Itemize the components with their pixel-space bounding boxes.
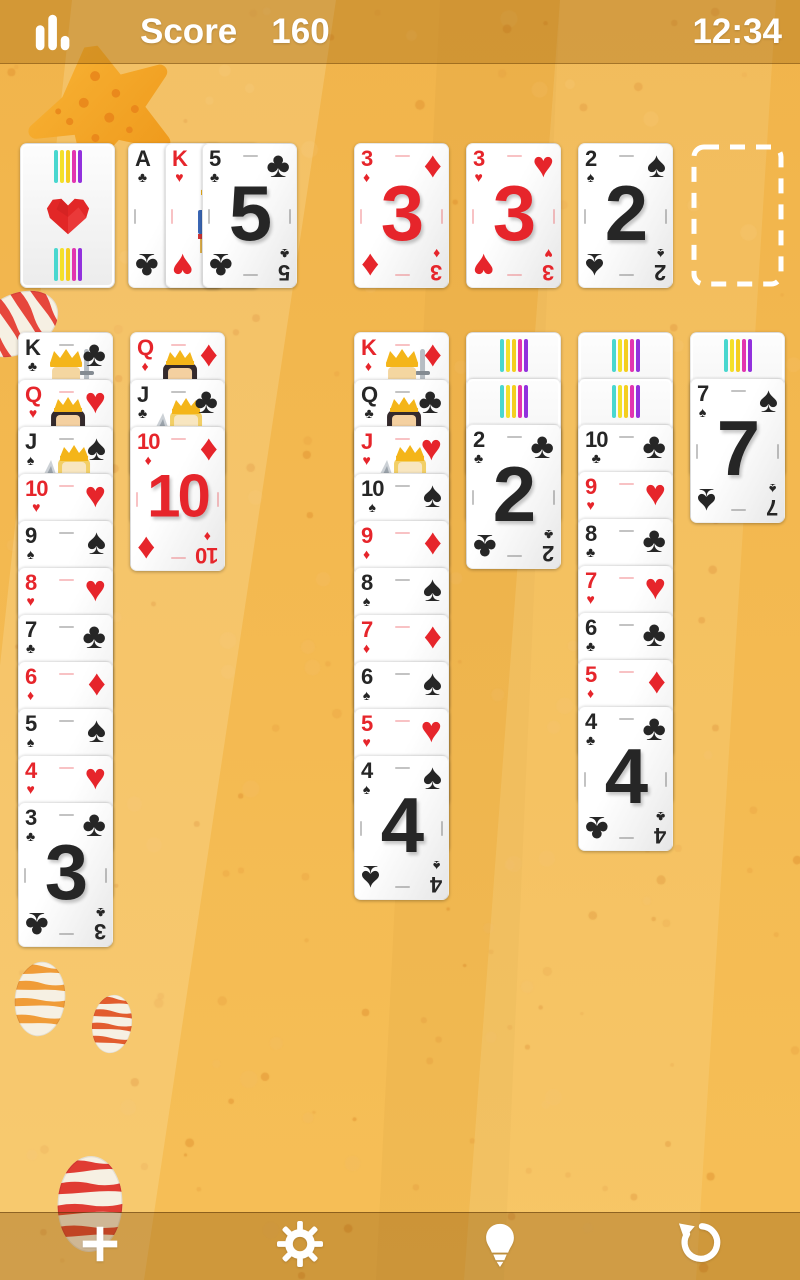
- dash-mark: [619, 274, 634, 276]
- corner-index: 7♠: [697, 384, 708, 419]
- corner-index: K♣: [25, 338, 40, 373]
- dash-mark: [59, 767, 74, 769]
- corner-index: 8♥: [25, 573, 36, 608]
- corner-index: 4♠: [431, 859, 442, 894]
- suit-glyph: ♦: [424, 524, 442, 560]
- card-3-of-diamonds[interactable]: 3♦♦♦3♦3: [354, 143, 449, 288]
- center-rank: 7: [717, 408, 758, 486]
- game-board: A♣♣♣A♣ K♥♥♥K♥5♣♣♣5♣53♦♦♦3♦33♥♥♥3♥32♠♠♠2♠…: [0, 0, 800, 1280]
- plus-icon: [77, 1221, 123, 1272]
- card-back-stripes: [54, 150, 82, 183]
- corner-index: 6♦: [25, 667, 36, 702]
- score-display: Score 160: [140, 12, 330, 52]
- suit-glyph: ♦: [88, 665, 106, 701]
- corner-index: Q♦: [137, 338, 153, 373]
- center-rank: 2: [493, 454, 534, 532]
- center-rank: 3: [381, 173, 422, 251]
- dash-mark: [243, 274, 258, 276]
- corner-index: 2♣: [543, 528, 554, 563]
- dash-mark: [59, 579, 74, 581]
- status-bar: Score 160 12:34: [0, 0, 800, 64]
- corner-index: 4♣: [585, 712, 596, 747]
- center-rank: 10: [147, 466, 208, 526]
- suit-glyph: ♣: [642, 522, 666, 558]
- suit-glyph: ♦: [137, 531, 155, 567]
- dash-mark: [619, 155, 634, 157]
- card-7-of-spades[interactable]: 7♠♠♠7♠7: [690, 378, 785, 523]
- dash-mark: [553, 490, 555, 505]
- dash-mark: [665, 772, 667, 787]
- suit-glyph: ♥: [85, 383, 106, 419]
- dash-mark: [59, 532, 74, 534]
- dash-mark: [619, 436, 634, 438]
- gear-icon: [277, 1221, 323, 1272]
- corner-index: 2♠: [585, 149, 596, 184]
- card-back-stripes: [500, 385, 528, 418]
- corner-index: 3♣: [25, 808, 36, 843]
- toolbar: [0, 1212, 800, 1280]
- dash-mark: [59, 438, 74, 440]
- card-back-stripes: [724, 339, 752, 372]
- dash-mark: [507, 436, 522, 438]
- suit-glyph: ♥: [421, 712, 442, 748]
- suit-glyph: ♣: [194, 383, 218, 419]
- dash-mark: [619, 530, 634, 532]
- corner-index: J♥: [361, 432, 372, 467]
- suit-glyph: ♣: [642, 428, 666, 464]
- suit-glyph: ♠: [423, 665, 442, 701]
- corner-index: Q♣: [361, 385, 377, 420]
- dash-mark: [441, 209, 443, 224]
- dash-mark: [217, 492, 219, 507]
- stock-pile[interactable]: [20, 143, 115, 288]
- suit-glyph: ♠: [585, 248, 604, 284]
- corner-index: 7♣: [25, 620, 36, 655]
- corner-index: 2♠: [655, 247, 666, 282]
- suit-glyph: ♦: [648, 663, 666, 699]
- corner-index: 10♥: [25, 479, 47, 514]
- dash-mark: [59, 720, 74, 722]
- dash-mark: [441, 821, 443, 836]
- center-rank: 2: [605, 173, 646, 251]
- corner-index: 4♥: [25, 761, 36, 796]
- foundation-slot-empty[interactable]: [690, 143, 785, 288]
- corner-index: 9♥: [585, 477, 596, 512]
- corner-index: 9♦: [361, 526, 372, 561]
- card-4-of-clubs[interactable]: 4♣♣♣4♣4: [578, 706, 673, 851]
- suit-glyph: ♦: [424, 336, 442, 372]
- dash-mark: [171, 344, 186, 346]
- suit-glyph: ♥: [645, 569, 666, 605]
- corner-index: 3♥: [473, 149, 484, 184]
- dash-mark: [507, 555, 522, 557]
- dash-mark: [171, 391, 186, 393]
- dash-mark: [584, 209, 586, 224]
- corner-index: 10♦: [196, 530, 218, 565]
- dash-mark: [59, 485, 74, 487]
- dash-mark: [619, 718, 634, 720]
- score-value: 160: [271, 12, 329, 52]
- corner-index: 5♣: [209, 149, 220, 184]
- suit-glyph: ♠: [697, 483, 716, 519]
- dash-mark: [134, 209, 136, 224]
- dash-mark: [59, 814, 74, 816]
- corner-index: 10♠: [361, 479, 383, 514]
- settings-button[interactable]: [200, 1213, 400, 1280]
- suit-glyph: ♦: [200, 336, 218, 372]
- dash-mark: [171, 209, 173, 224]
- dash-mark: [507, 155, 522, 157]
- center-rank: 5: [229, 173, 270, 251]
- corner-index: 6♠: [361, 667, 372, 702]
- dash-mark: [289, 209, 291, 224]
- suit-glyph: ♣: [418, 383, 442, 419]
- dash-mark: [731, 509, 746, 511]
- suit-glyph: ♥: [172, 248, 193, 284]
- card-4-of-spades[interactable]: 4♠♠♠4♠4: [354, 755, 449, 900]
- suit-glyph: ♠: [361, 860, 380, 896]
- dash-mark: [619, 577, 634, 579]
- corner-index: J♠: [25, 432, 36, 467]
- dash-mark: [59, 344, 74, 346]
- new-game-button[interactable]: [0, 1213, 200, 1280]
- center-rank: 4: [605, 736, 646, 814]
- card-10-of-diamonds[interactable]: 10♦♦♦10♦10: [130, 426, 225, 571]
- corner-index: 3♦: [361, 149, 372, 184]
- solitaire-game-screen: Score 160 12:34 A♣♣♣A♣ K♥♥♥K♥5♣♣♣5♣53♦♦♦…: [0, 0, 800, 1280]
- dash-mark: [395, 579, 410, 581]
- dash-mark: [59, 626, 74, 628]
- card-back-stripes: [500, 339, 528, 372]
- suit-glyph: ♣: [135, 248, 159, 284]
- card-2-of-clubs[interactable]: 2♣♣♣2♣2: [466, 424, 561, 569]
- suit-glyph: ♥: [85, 477, 106, 513]
- suit-glyph: ♠: [423, 477, 442, 513]
- corner-index: 3♦: [431, 247, 442, 282]
- dash-mark: [171, 438, 186, 440]
- dash-mark: [243, 155, 258, 157]
- dash-mark: [619, 671, 634, 673]
- dash-mark: [553, 209, 555, 224]
- dash-mark: [136, 492, 138, 507]
- dash-mark: [395, 391, 410, 393]
- dash-mark: [395, 485, 410, 487]
- suit-glyph: ♦: [424, 147, 442, 183]
- suit-glyph: ♠: [423, 571, 442, 607]
- suit-glyph: ♥: [473, 248, 494, 284]
- lightbulb-icon: [477, 1221, 523, 1272]
- corner-index: 7♦: [361, 620, 372, 655]
- card-back-heart: [45, 195, 91, 237]
- suit-glyph: ♣: [642, 616, 666, 652]
- card-5-of-clubs[interactable]: 5♣♣♣5♣5: [202, 143, 297, 288]
- suit-glyph: ♥: [645, 475, 666, 511]
- card-3-of-clubs[interactable]: 3♣♣♣3♣3: [18, 802, 113, 947]
- suit-glyph: ♠: [423, 759, 442, 795]
- corner-index: 2♣: [473, 430, 484, 465]
- dash-mark: [472, 209, 474, 224]
- corner-index: 8♣: [585, 524, 596, 559]
- corner-index: J♣: [137, 385, 148, 420]
- corner-index: 3♥: [543, 247, 554, 282]
- corner-index: 4♠: [361, 761, 372, 796]
- dash-mark: [584, 772, 586, 787]
- undo-icon: [677, 1221, 723, 1272]
- corner-index: 4♣: [655, 810, 666, 845]
- dash-mark: [395, 155, 410, 157]
- suit-glyph: ♦: [200, 430, 218, 466]
- card-back-stripes: [54, 248, 82, 281]
- dash-mark: [360, 821, 362, 836]
- suit-glyph: ♥: [533, 147, 554, 183]
- corner-index: 7♥: [585, 571, 596, 606]
- suit-glyph: ♠: [87, 524, 106, 560]
- suit-glyph: ♥: [421, 430, 442, 466]
- corner-index: 5♦: [585, 665, 596, 700]
- dash-mark: [105, 868, 107, 883]
- corner-index: 6♣: [585, 618, 596, 653]
- dash-mark: [59, 933, 74, 935]
- corner-index: 5♣: [279, 247, 290, 282]
- dash-mark: [619, 624, 634, 626]
- corner-index: K♦: [361, 338, 376, 373]
- dash-mark: [395, 438, 410, 440]
- stats-bar-chart-icon[interactable]: [32, 9, 78, 55]
- dash-mark: [395, 274, 410, 276]
- corner-index: 5♥: [361, 714, 372, 749]
- center-rank: 4: [381, 785, 422, 863]
- corner-index: 3♣: [95, 906, 106, 941]
- dash-mark: [507, 274, 522, 276]
- score-label: Score: [140, 12, 237, 52]
- suit-glyph: ♦: [424, 618, 442, 654]
- game-timer: 12:34: [692, 12, 782, 52]
- corner-index: K♥: [172, 149, 187, 184]
- card-2-of-spades[interactable]: 2♠♠♠2♠2: [578, 143, 673, 288]
- corner-index: 5♠: [25, 714, 36, 749]
- dash-mark: [171, 557, 186, 559]
- card-3-of-hearts[interactable]: 3♥♥♥3♥3: [466, 143, 561, 288]
- dash-mark: [395, 344, 410, 346]
- dash-mark: [395, 532, 410, 534]
- suit-glyph: ♥: [85, 571, 106, 607]
- dash-mark: [777, 444, 779, 459]
- undo-button[interactable]: [600, 1213, 800, 1280]
- corner-index: A♣: [135, 149, 150, 184]
- dash-mark: [59, 391, 74, 393]
- dash-mark: [619, 483, 634, 485]
- dash-mark: [731, 390, 746, 392]
- suit-glyph: ♦: [361, 248, 379, 284]
- dash-mark: [665, 209, 667, 224]
- corner-index: 8♠: [361, 573, 372, 608]
- suit-glyph: ♠: [87, 430, 106, 466]
- dash-mark: [395, 886, 410, 888]
- corner-index: 10♣: [585, 430, 607, 465]
- dash-mark: [24, 868, 26, 883]
- dash-mark: [619, 837, 634, 839]
- dash-mark: [395, 626, 410, 628]
- suit-glyph: ♥: [85, 759, 106, 795]
- card-back-stripes: [612, 385, 640, 418]
- dash-mark: [360, 209, 362, 224]
- suit-glyph: ♣: [82, 618, 106, 654]
- center-rank: 3: [45, 832, 86, 910]
- dash-mark: [472, 490, 474, 505]
- dash-mark: [696, 444, 698, 459]
- corner-index: 7♠: [767, 482, 778, 517]
- suit-glyph: ♠: [647, 147, 666, 183]
- suit-glyph: ♠: [759, 382, 778, 418]
- dash-mark: [395, 767, 410, 769]
- dash-mark: [395, 673, 410, 675]
- suit-glyph: ♣: [82, 336, 106, 372]
- dash-mark: [59, 673, 74, 675]
- card-back-stripes: [612, 339, 640, 372]
- suit-glyph: ♠: [87, 712, 106, 748]
- hint-button[interactable]: [400, 1213, 600, 1280]
- center-rank: 3: [493, 173, 534, 251]
- corner-index: 9♠: [25, 526, 36, 561]
- corner-index: Q♥: [25, 385, 41, 420]
- dash-mark: [395, 720, 410, 722]
- dash-mark: [208, 209, 210, 224]
